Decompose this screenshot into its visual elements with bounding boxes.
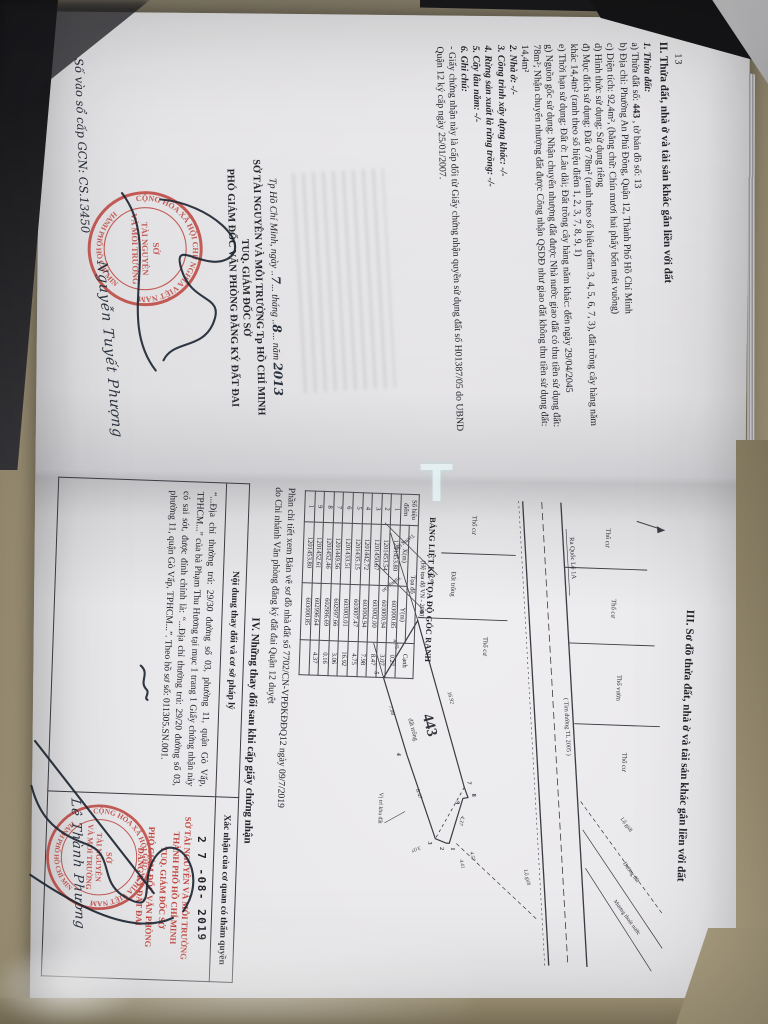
dim-16-92: 16.92 (446, 691, 455, 705)
page-right-sections3-4: III. Sơ đồ thửa đất, nhà ở và tài sản kh… (30, 471, 746, 1008)
coord-cell: 3.06 (328, 641, 339, 676)
lo-gioi-2: Lộ giới (522, 869, 532, 886)
coord-cell: 9 (314, 491, 325, 522)
book-entry-value: CS.13450 (76, 176, 92, 233)
dim-4-41: 4.41 (458, 859, 467, 870)
photo-of-land-certificate: 13 II. Thửa đất, nhà ở và tài sản khác g… (0, 0, 768, 1024)
parcel-443-type: đất trống (406, 718, 419, 743)
coord-cell: 4 (362, 493, 373, 524)
coord-cell: 4.75 (347, 641, 358, 676)
coord-cell: 8.47 (366, 642, 377, 677)
parcel-label: Đất trống (449, 571, 457, 597)
coord-cell: 1 (304, 491, 315, 522)
coord-cell: 7 (333, 492, 344, 523)
coord-cell: 603000.85 (387, 586, 399, 643)
changes-table: Nội dung thay đổi và cơ sở pháp lý Xác n… (41, 477, 250, 983)
ink-bleed-through (292, 168, 396, 393)
vertex-8: 8 (470, 794, 476, 797)
section2-body: 1. Thửa đất: a) Thửa đất số: 443 , tờ bả… (432, 42, 660, 449)
page-right-content: III. Sơ đồ thửa đất, nhà ở và tài sản kh… (22, 461, 750, 1015)
parcel-label: Thổ vườn (614, 675, 622, 702)
coord-cell: 7.98 (357, 642, 368, 677)
coord-cell: 602996.69 (319, 583, 331, 640)
coord-cell: 3.07 (376, 642, 387, 677)
coord-cell: 0.16 (318, 640, 329, 675)
line-a-pre: a) Thửa đất số: (629, 42, 641, 101)
coord-cell: 603000.85 (300, 583, 312, 640)
parcel-label: Thổ cư (609, 599, 617, 619)
coord-cell: 0.27 (385, 643, 396, 678)
paraph-squiggle (136, 661, 153, 702)
parcel-label: Thổ cư (470, 516, 478, 536)
coord-cell: 603000.94 (377, 585, 389, 642)
coord-cell (299, 640, 310, 675)
parcel-443-number: 443 (419, 712, 440, 738)
book-entry-label: Số vào sổ cấp GCN: (72, 58, 90, 174)
page-left-section2: 13 II. Thửa đất, nhà ở và tài sản khác g… (35, 11, 750, 478)
vertex-3: 3 (426, 841, 432, 844)
line-a-post: , tờ bản đồ số: 13 (630, 118, 642, 188)
coord-cell: 603002.00 (367, 585, 379, 642)
muong-label: Mương thoát nước (612, 899, 642, 937)
vertex-1: 1 (449, 847, 455, 850)
parcel-number-value: 443 (630, 103, 641, 118)
col-point-header: Số hiệu điểm (400, 494, 419, 526)
coordinate-table: Số hiệu điểm Tọa độ Cạnh X(m) Y(m) 11201… (299, 490, 420, 679)
coord-cell: 16.92 (337, 641, 348, 676)
duong-dat-label: Đường đất (621, 860, 641, 884)
seal2-center1: SỞ (104, 852, 114, 864)
coordinate-table-block: BẢNG LIỆT KÊ TỌA ĐỘ GÓC RANH (Hệ tọa độ … (298, 490, 437, 685)
coord-cell: 3 (372, 493, 383, 524)
vertex-9: 9 (454, 801, 460, 804)
coord-cell: 2 (381, 493, 392, 524)
page-left-content: 13 II. Thửa đất, nhà ở và tài sản khác g… (35, 12, 754, 487)
coord-cell: 8 (324, 491, 335, 522)
coord-cell: 1 (391, 494, 402, 525)
page-number: 13 (672, 53, 683, 65)
coord-cell: 603007.47 (348, 584, 360, 641)
document-spread: 13 II. Thửa đất, nhà ở và tài sản khác g… (30, 11, 750, 1008)
vi-tri-khu-dat: Vị trí khu đất (376, 792, 384, 824)
north-arrow-icon (636, 521, 665, 533)
parcel-label: Thổ cư (481, 637, 489, 657)
dim-7-98: 7.98 (387, 705, 396, 716)
road-lines (502, 501, 603, 967)
change-entry-text: “...Địa chỉ thường trú: 29/30 đường số 0… (149, 482, 225, 795)
coord-cell: 603004.94 (358, 585, 370, 642)
parcel-label: Thổ cư (604, 528, 612, 548)
date-received-stamp: 2 7 -08- 2019 (195, 798, 208, 980)
coord-cell: 6 (343, 492, 354, 523)
dim-4-37: 4.37 (457, 815, 465, 826)
road-name-label: Ra Quốc Lộ 1A (568, 537, 577, 580)
official-seal-icon-2: CỘNG HÒA XÃ HỘI CHỦ NGHĨA VIỆT NAM ★ THÀ… (41, 799, 157, 915)
coord-cell: 4.37 (309, 640, 320, 675)
vertex-4: 4 (395, 753, 401, 756)
lo-gioi-label: Lộ giới (619, 817, 634, 834)
vertex-7: 7 (465, 781, 471, 784)
parcel-label: Thổ cư (620, 753, 628, 773)
coord-table-body: 11201453.80603000.850.2721201453.5460300… (299, 491, 401, 678)
coord-cell: 603003.01 (339, 584, 351, 641)
col-edge-header: Cạnh (395, 643, 414, 679)
coord-cell: 602997.66 (329, 584, 341, 641)
road-centerline-label: ( Tim đường TL 2005 ) (562, 698, 572, 756)
coord-cell: 5 (352, 492, 363, 523)
gcn-book-entry: Số vào sổ cấp GCN: CS.13450 (72, 58, 93, 234)
section2-heading: II. Thửa đất, nhà ở và tài sản khác gắn … (657, 42, 678, 452)
signature-ink-left (95, 172, 284, 386)
roadside-annotations: Lộ giới Đường đất Mương thoát nước (575, 801, 667, 971)
dim-4-57: 4.57 (468, 851, 477, 862)
coord-cell: 602996.64 (310, 583, 322, 640)
dim-8-47: 8.47 (414, 788, 423, 799)
vertex-2: 2 (438, 847, 444, 850)
dim-3-07: 3.07 (410, 844, 421, 853)
